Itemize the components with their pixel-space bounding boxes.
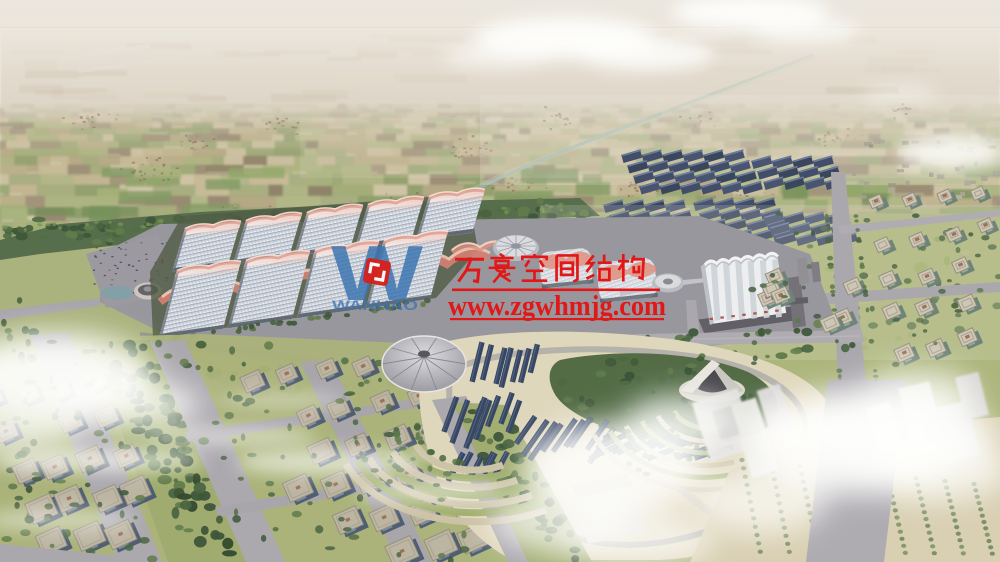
svg-text:WANHAO: WANHAO <box>332 298 418 313</box>
svg-text:www.zgwhmjg.com: www.zgwhmjg.com <box>448 290 666 322</box>
